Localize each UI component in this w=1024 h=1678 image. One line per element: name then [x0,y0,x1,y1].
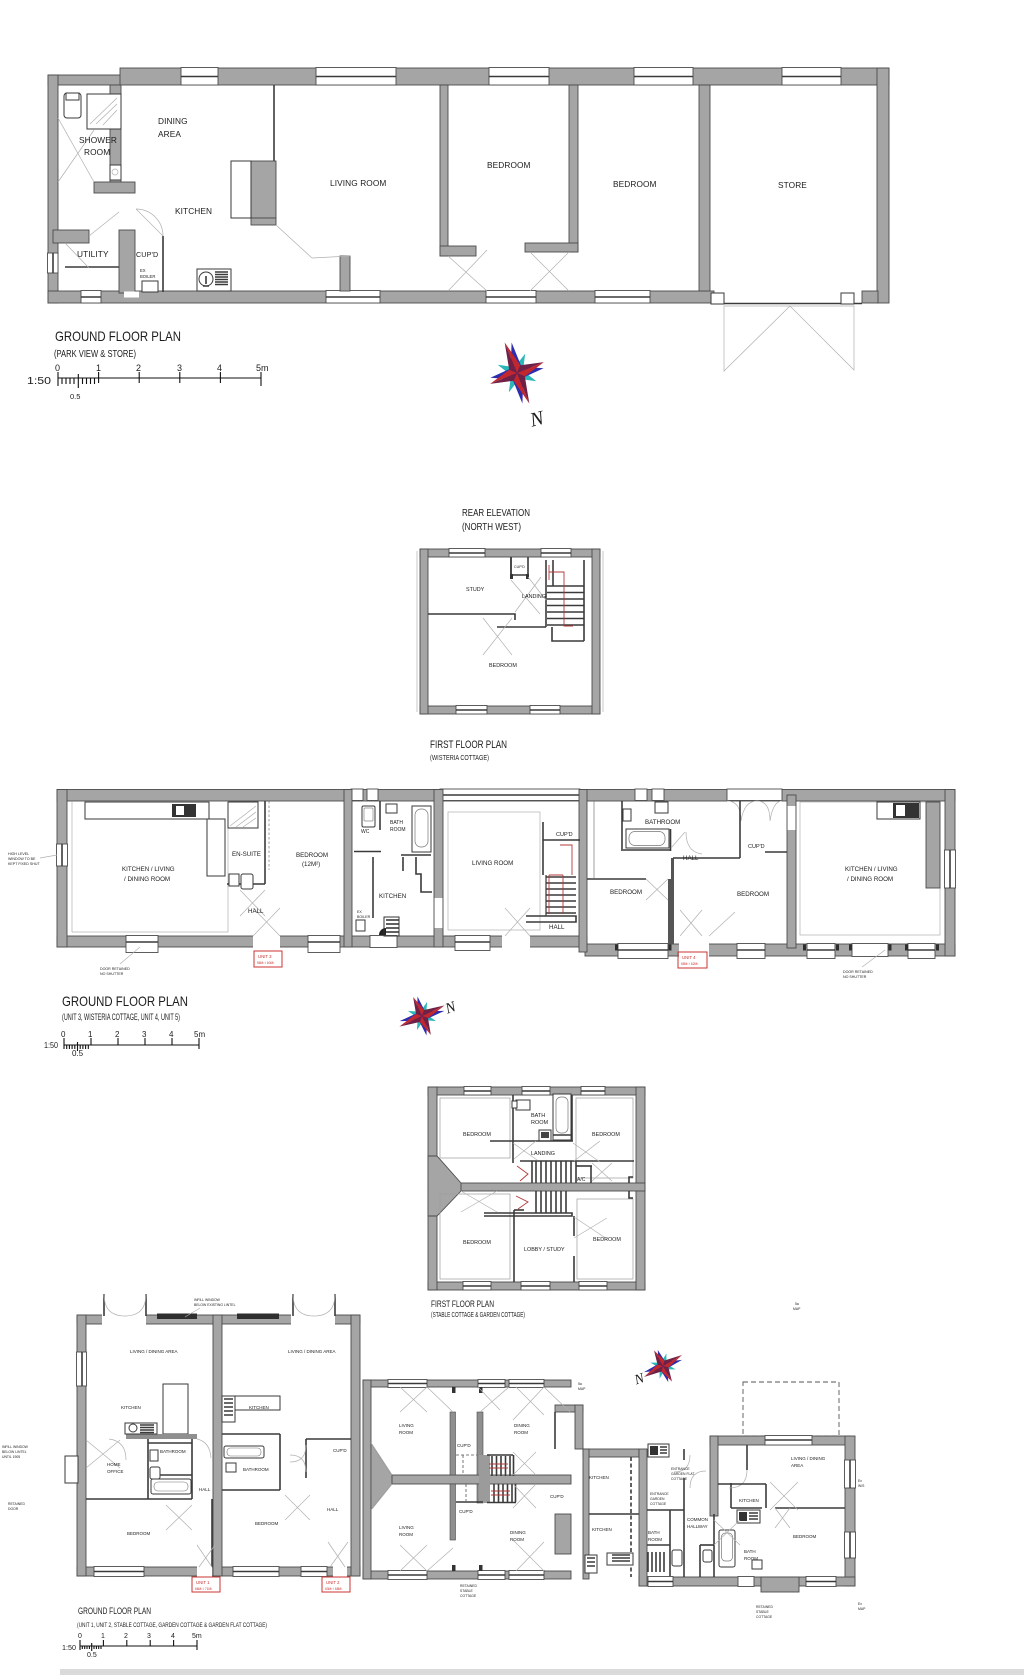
svg-text:BATHROOM: BATHROOM [645,819,680,826]
svg-text:Ex: Ex [858,1602,862,1606]
svg-text:BATH: BATH [648,1530,660,1535]
svg-text:LANDING: LANDING [531,1151,555,1157]
svg-text:ROOM: ROOM [514,1430,528,1435]
svg-text:KITCHEN: KITCHEN [379,893,406,900]
svg-text:ENTRANCE: ENTRANCE [671,1467,690,1471]
svg-text:0.5: 0.5 [87,1652,97,1659]
svg-text:LOBBY / STUDY: LOBBY / STUDY [524,1247,565,1253]
svg-text:UTILITY: UTILITY [77,249,109,259]
svg-text:LIVING ROOM: LIVING ROOM [472,860,513,867]
svg-text:0.5: 0.5 [72,1049,84,1058]
svg-text:ROOM: ROOM [648,1537,662,1542]
svg-text:BEDROOM: BEDROOM [592,1132,620,1138]
svg-text:(STABLE COTTAGE & GARDEN COTTA: (STABLE COTTAGE & GARDEN COTTAGE) [431,1312,525,1319]
svg-text:COTTAGE: COTTAGE [460,1594,477,1598]
svg-text:BEDROOM: BEDROOM [610,889,642,896]
svg-text:BELOW LINTEL: BELOW LINTEL [2,1450,27,1454]
svg-text:EN-SUITE: EN-SUITE [232,851,261,858]
svg-text:1:50: 1:50 [62,1645,76,1652]
svg-text:(UNIT 3, WISTERIA COTTAGE, UNI: (UNIT 3, WISTERIA COTTAGE, UNIT 4, UNIT … [62,1012,180,1022]
svg-text:GARDEN FLAT: GARDEN FLAT [671,1472,695,1476]
svg-text:DOOR RETAINED: DOOR RETAINED [843,970,873,974]
svg-text:KITCHEN: KITCHEN [592,1527,612,1532]
svg-text:HALL: HALL [199,1487,211,1492]
svg-text:KITCHEN: KITCHEN [739,1498,759,1503]
svg-text:BEDROOM: BEDROOM [737,891,769,898]
svg-text:CUP'D: CUP'D [136,250,158,259]
svg-text:CUP'D: CUP'D [457,1443,471,1448]
svg-text:ROOM: ROOM [84,147,110,157]
svg-text:HALL: HALL [683,855,699,862]
svg-text:DINING: DINING [158,116,188,126]
svg-text:BATH: BATH [531,1113,545,1119]
svg-text:LANDING: LANDING [522,594,546,600]
svg-text:HALL: HALL [327,1507,339,1512]
svg-text:ROOM: ROOM [744,1556,758,1561]
svg-text:NO SHUTTER: NO SHUTTER [100,972,124,976]
svg-text:BATH: BATH [744,1549,756,1554]
svg-text:INFILL WINDOW: INFILL WINDOW [2,1445,29,1449]
svg-text:DINING: DINING [510,1530,526,1535]
svg-text:LIVING / DINING AREA: LIVING / DINING AREA [288,1349,336,1354]
svg-text:UNIT 3: UNIT 3 [258,954,272,959]
svg-text:0: 0 [61,1030,66,1039]
svg-text:(WISTERIA COTTAGE): (WISTERIA COTTAGE) [430,753,489,762]
svg-text:ROOM: ROOM [399,1430,413,1435]
svg-text:BEDROOM: BEDROOM [487,160,531,170]
svg-text:HALL: HALL [549,924,565,931]
svg-text:HALLWAY: HALLWAY [687,1524,708,1529]
svg-text:/ DINING ROOM: / DINING ROOM [847,876,893,883]
svg-text:ROOM: ROOM [510,1537,524,1542]
svg-text:MAP: MAP [858,1607,866,1611]
svg-text:NO SHUTTER: NO SHUTTER [843,975,867,979]
svg-text:AREA: AREA [158,129,181,139]
svg-text:(UNIT 1, UNIT 2, STABLE COTTAG: (UNIT 1, UNIT 2, STABLE COTTAGE, GARDEN … [77,1623,267,1629]
svg-text:5m: 5m [192,1633,202,1640]
svg-text:KEPT FIXED SHUT: KEPT FIXED SHUT [8,862,40,866]
svg-text:1:50: 1:50 [44,1041,58,1050]
svg-text:1: 1 [96,363,101,373]
svg-text:Ex: Ex [858,1479,862,1483]
svg-text:56M² / 60M²: 56M² / 60M² [257,961,274,965]
svg-text:BATH: BATH [390,820,403,826]
svg-text:5m: 5m [256,363,269,373]
svg-text:W/S: W/S [858,1484,865,1488]
svg-text:3: 3 [177,363,182,373]
svg-text:STABLE: STABLE [756,1610,769,1614]
svg-text:COTTAGE: COTTAGE [756,1615,773,1619]
svg-text:BOILER: BOILER [357,915,371,919]
svg-text:MAP: MAP [793,1307,801,1311]
svg-text:65M² / 62M²: 65M² / 62M² [681,962,698,966]
svg-text:(NORTH WEST): (NORTH WEST) [462,521,521,533]
svg-text:HALL: HALL [248,908,264,915]
svg-text:(12M²): (12M²) [302,861,320,868]
svg-text:KITCHEN: KITCHEN [175,206,212,216]
svg-text:5a: 5a [578,1382,582,1386]
svg-text:BEDROOM: BEDROOM [255,1521,279,1526]
svg-text:UNIT 1: UNIT 1 [196,1580,210,1585]
svg-text:BEDROOM: BEDROOM [463,1240,491,1246]
svg-text:BELOW EXISTING LINTEL: BELOW EXISTING LINTEL [194,1303,236,1307]
svg-text:WINDOW TO BE: WINDOW TO BE [8,857,36,861]
svg-text:BEDROOM: BEDROOM [613,179,657,189]
svg-text:MAP: MAP [578,1387,586,1391]
svg-text:COTTAGE: COTTAGE [650,1502,667,1506]
svg-text:COMMON: COMMON [687,1517,708,1522]
svg-text:GROUND FLOOR PLAN: GROUND FLOOR PLAN [55,328,181,344]
svg-text:0: 0 [55,363,60,373]
svg-text:LIVING / DINING AREA: LIVING / DINING AREA [130,1349,178,1354]
svg-text:3: 3 [147,1633,151,1640]
svg-text:CUP'D: CUP'D [550,1494,564,1499]
svg-text:ROOM: ROOM [390,827,406,833]
svg-text:1: 1 [101,1633,105,1640]
svg-text:1:50: 1:50 [27,376,52,387]
svg-text:STABLE: STABLE [460,1589,473,1593]
svg-text:DOOR RETAINED: DOOR RETAINED [100,967,130,971]
svg-text:KITCHEN: KITCHEN [589,1475,609,1480]
svg-text:/ DINING ROOM: / DINING ROOM [124,876,170,883]
svg-text:(PARK VIEW & STORE): (PARK VIEW & STORE) [54,349,136,360]
svg-text:HOME: HOME [107,1462,121,1467]
svg-text:4: 4 [171,1633,175,1640]
svg-text:BEDROOM: BEDROOM [593,1237,621,1243]
svg-text:EX: EX [357,910,362,914]
svg-text:INFILL WINDOW: INFILL WINDOW [194,1298,221,1302]
svg-text:GROUND FLOOR PLAN: GROUND FLOOR PLAN [78,1606,151,1616]
svg-text:FIRST FLOOR PLAN: FIRST FLOOR PLAN [430,739,507,751]
svg-text:GROUND FLOOR PLAN: GROUND FLOOR PLAN [62,993,188,1009]
svg-text:KITCHEN / LIVING: KITCHEN / LIVING [122,866,175,873]
svg-text:LIVING / DINING: LIVING / DINING [791,1456,826,1461]
svg-text:RETAINED: RETAINED [460,1584,477,1588]
svg-text:DINING: DINING [514,1423,530,1428]
svg-text:HIGH LEVEL: HIGH LEVEL [8,852,29,856]
svg-text:BEDROOM: BEDROOM [793,1534,817,1539]
svg-text:5a: 5a [795,1302,799,1306]
svg-text:ROOM: ROOM [399,1532,413,1537]
svg-text:0.5: 0.5 [70,392,80,401]
svg-text:REAR ELEVATION: REAR ELEVATION [462,507,530,519]
svg-text:KITCHEN: KITCHEN [249,1405,269,1410]
svg-text:UNIT 2: UNIT 2 [326,1580,340,1585]
svg-text:UNIT 4: UNIT 4 [682,955,696,960]
svg-text:BEDROOM: BEDROOM [127,1531,151,1536]
svg-text:SHOWER: SHOWER [79,135,117,145]
svg-text:STORE: STORE [778,180,807,190]
svg-text:5m: 5m [194,1030,205,1039]
svg-text:WC: WC [361,829,370,835]
svg-text:1: 1 [88,1030,93,1039]
svg-text:CUP'D: CUP'D [748,844,765,850]
svg-text:BOILER: BOILER [140,274,155,279]
svg-text:LIVING: LIVING [399,1525,414,1530]
svg-text:OFFICE: OFFICE [107,1469,124,1474]
svg-text:CUP'D: CUP'D [514,565,525,569]
svg-text:LIVING ROOM: LIVING ROOM [330,178,386,188]
svg-text:BEDROOM: BEDROOM [489,663,517,669]
svg-text:KITCHEN: KITCHEN [121,1405,141,1410]
svg-text:KITCHEN / LIVING: KITCHEN / LIVING [845,866,898,873]
svg-text:BEDROOM: BEDROOM [296,852,328,859]
svg-text:3: 3 [142,1030,147,1039]
svg-text:CUP'D: CUP'D [556,832,573,838]
svg-text:RETAINED: RETAINED [756,1605,773,1609]
svg-text:COTTAGE: COTTAGE [671,1477,688,1481]
svg-text:A/C: A/C [577,1177,586,1183]
svg-text:LIVING: LIVING [399,1423,414,1428]
svg-text:2: 2 [136,363,141,373]
svg-text:BATHROOM: BATHROOM [243,1467,269,1472]
svg-text:ENTRANCE: ENTRANCE [650,1492,669,1496]
svg-text:STUDY: STUDY [466,587,485,593]
svg-text:UNTIL 1905: UNTIL 1905 [2,1455,20,1459]
svg-text:4: 4 [169,1030,174,1039]
svg-text:BATHROOM: BATHROOM [160,1449,186,1454]
svg-text:AREA: AREA [791,1463,803,1468]
svg-text:FIRST FLOOR PLAN: FIRST FLOOR PLAN [431,1299,494,1309]
svg-text:GARDEN: GARDEN [650,1497,665,1501]
svg-text:ROOM: ROOM [531,1120,549,1126]
svg-text:RETAINED: RETAINED [8,1502,25,1506]
svg-text:BEDROOM: BEDROOM [463,1132,491,1138]
svg-text:4: 4 [217,363,222,373]
svg-text:66M² / 71M²: 66M² / 71M² [195,1587,212,1591]
svg-text:EX: EX [140,268,146,273]
svg-text:DOOR: DOOR [8,1507,19,1511]
svg-text:0: 0 [78,1633,82,1640]
svg-text:63M² / 68M²: 63M² / 68M² [325,1587,342,1591]
svg-text:CUP'D: CUP'D [333,1448,347,1453]
svg-text:2: 2 [124,1633,128,1640]
svg-text:2: 2 [115,1030,120,1039]
svg-text:CUP'D: CUP'D [459,1509,473,1514]
